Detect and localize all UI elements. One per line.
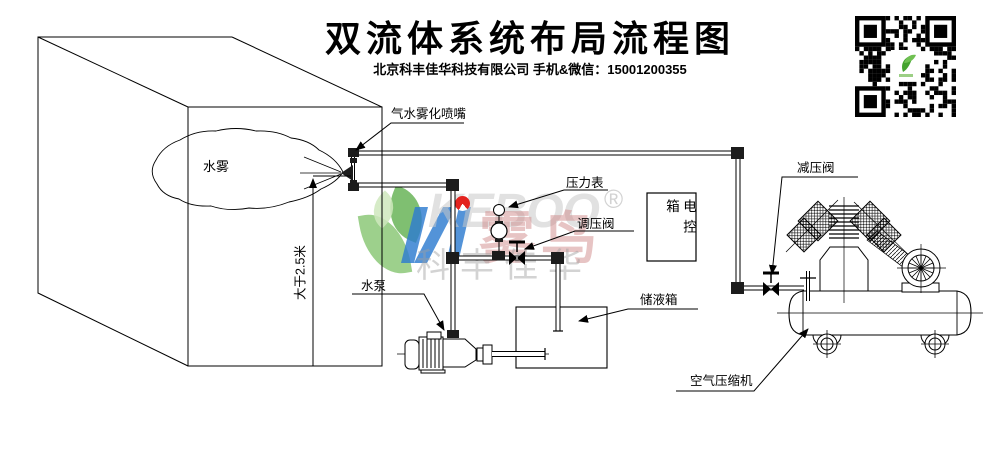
dimension-line	[313, 176, 351, 366]
gauge-assembly	[491, 205, 507, 261]
label-reducing-valve: 减压阀	[797, 162, 835, 176]
room-outline	[38, 37, 382, 366]
regulating-valve-drawing	[509, 242, 525, 265]
page-subtitle: 北京科丰佳华科技有限公司 手机&微信：15001200355	[290, 59, 770, 78]
mist-cloud	[152, 129, 343, 210]
spray-lines	[300, 157, 341, 189]
reducing-valve-drawing	[763, 273, 779, 296]
label-water-mist: 水雾	[203, 160, 229, 174]
label-nozzle: 气水雾化喷嘴	[391, 108, 466, 122]
diagram-canvas: KEBOO ® 雾鸟 科丰佳华	[0, 0, 992, 460]
storage-tank-drawing	[516, 307, 607, 368]
qr-center-bird-icon	[891, 50, 921, 84]
label-water-pump: 水泵	[361, 280, 386, 294]
label-pressure-gauge: 压力表	[566, 177, 604, 191]
qr-code	[855, 16, 956, 117]
label-control-box: 电控箱	[663, 199, 697, 259]
label-dimension: 大于2.5米	[290, 228, 309, 318]
label-regulating-valve: 调压阀	[577, 218, 615, 232]
label-air-compressor: 空气压缩机	[690, 375, 753, 389]
label-storage-tank: 储液箱	[640, 294, 678, 308]
page-title: 双流体系统布局流程图	[290, 10, 770, 62]
